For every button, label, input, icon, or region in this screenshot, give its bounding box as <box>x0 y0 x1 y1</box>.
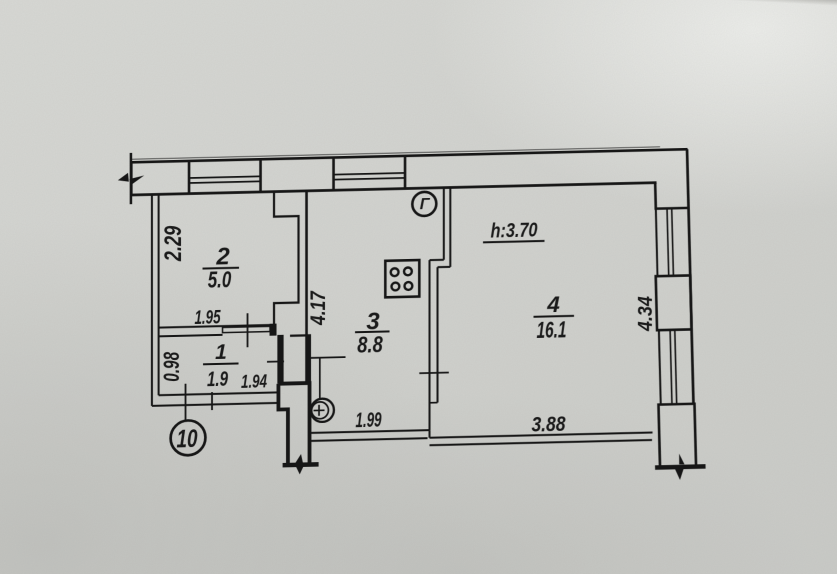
svg-text:1.95: 1.95 <box>195 307 221 329</box>
svg-text:2.29: 2.29 <box>160 225 187 262</box>
svg-text:5.0: 5.0 <box>208 266 232 293</box>
svg-text:4: 4 <box>546 292 560 317</box>
svg-text:1.9: 1.9 <box>207 367 228 391</box>
svg-text:1.99: 1.99 <box>356 408 382 433</box>
svg-text:Г: Г <box>420 196 431 213</box>
svg-text:4.17: 4.17 <box>307 290 330 326</box>
svg-text:0.98: 0.98 <box>159 351 184 382</box>
svg-text:8.8: 8.8 <box>357 331 383 358</box>
svg-text:1.94: 1.94 <box>241 371 267 392</box>
svg-text:h:3.70: h:3.70 <box>491 218 538 242</box>
svg-text:1: 1 <box>215 341 227 364</box>
svg-text:10: 10 <box>177 425 198 453</box>
svg-text:16.1: 16.1 <box>536 316 566 343</box>
svg-text:4.34: 4.34 <box>635 296 657 332</box>
svg-text:3.88: 3.88 <box>532 412 566 437</box>
